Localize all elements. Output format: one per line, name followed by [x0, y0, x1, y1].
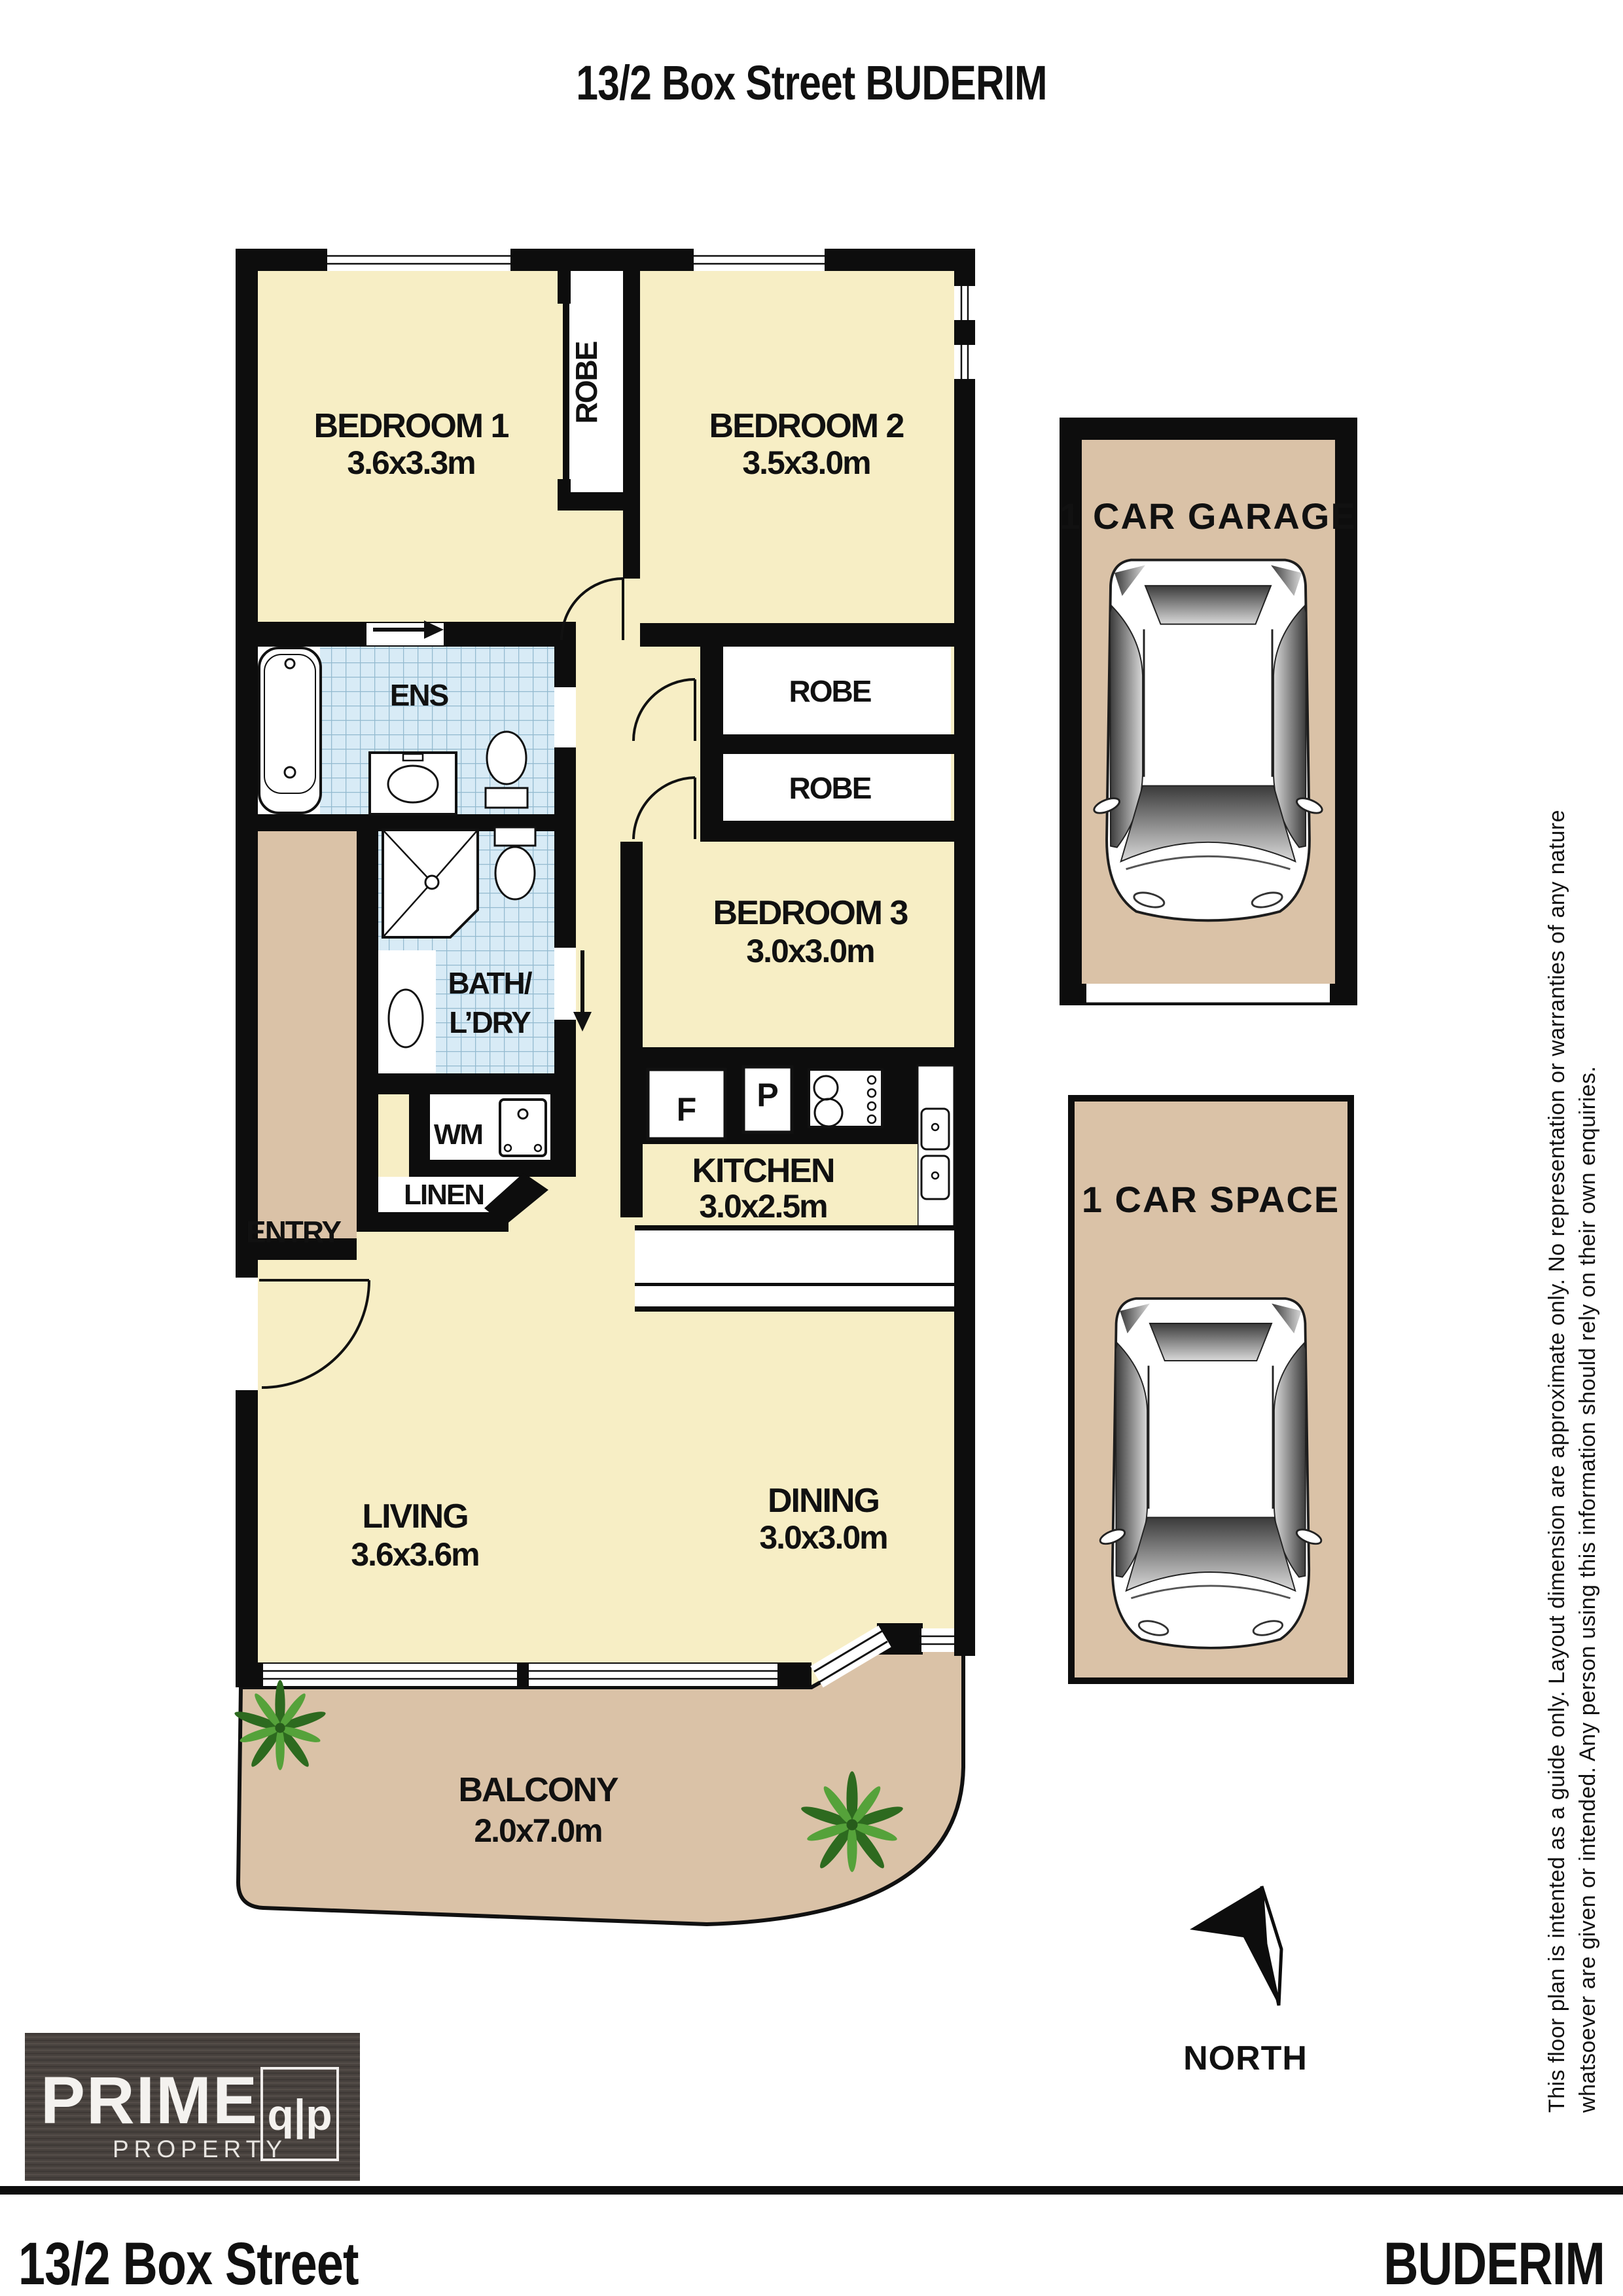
kitchen-label: KITCHEN: [692, 1152, 834, 1190]
disclaimer-line1: This floor plan is intented as a guide o…: [1544, 810, 1569, 2113]
dining-label: DINING: [768, 1482, 879, 1520]
bath-label-line1: BATH/: [448, 966, 532, 1000]
pantry-label: P: [757, 1077, 778, 1113]
kitchen-dims: 3.0x2.5m: [699, 1188, 827, 1225]
garage-car: [1092, 560, 1324, 921]
bedroom2-label: BEDROOM 2: [709, 407, 904, 445]
living-dims: 3.6x3.6m: [351, 1536, 478, 1573]
floor-plan: BEDROOM 1 3.6x3.3m BEDROOM 2 3.5x3.0m RO…: [233, 249, 975, 1924]
page-title: 13/2 Box Street BUDERIM: [576, 56, 1046, 110]
agency-logo: PRIME PROPERTY q|p: [25, 2033, 360, 2181]
ens-label: ENS: [390, 678, 448, 712]
living-label: LIVING: [362, 1498, 467, 1535]
footer-address: 13/2 Box Street: [18, 2230, 359, 2296]
robe-bottom-label: ROBE: [789, 771, 871, 805]
robe-strip-label: ROBE: [569, 342, 603, 423]
car-space-block: 1 CAR SPACE: [1071, 1098, 1351, 1681]
bath-label-line2: L’DRY: [449, 1005, 531, 1039]
kitchen-bench: [635, 1230, 954, 1306]
footer-suburb: BUDERIM: [1383, 2230, 1605, 2296]
bedroom2-dims: 3.5x3.0m: [742, 444, 870, 481]
garage-label: 1 CAR GARAGE: [1060, 495, 1356, 537]
linen-label: LINEN: [404, 1179, 484, 1211]
logo-monogram: q|p: [267, 2090, 332, 2140]
bedroom3-dims: 3.0x3.0m: [746, 933, 874, 969]
wm-label: WM: [434, 1119, 482, 1151]
entry-label: ENTRY: [246, 1215, 342, 1249]
bedroom1-dims: 3.6x3.3m: [347, 444, 474, 481]
car-space-label: 1 CAR SPACE: [1082, 1179, 1340, 1220]
bath-basin-icon: [389, 990, 423, 1047]
car-space-car: [1098, 1299, 1323, 1648]
dining-dims: 3.0x3.0m: [759, 1519, 887, 1556]
north-label: NORTH: [1183, 2039, 1308, 2077]
bedroom1-label: BEDROOM 1: [314, 407, 509, 445]
disclaimer-line2: whatsoever are given or intended. Any pe…: [1575, 1066, 1600, 2113]
floorplan-page: 13/2 Box Street BUDERIM: [0, 0, 1623, 2296]
logo-name: PRIME: [41, 2063, 259, 2138]
balcony-dims: 2.0x7.0m: [474, 1812, 601, 1849]
bedroom3-label: BEDROOM 3: [713, 894, 908, 932]
entry-area: [257, 831, 357, 1238]
footer-divider: [0, 2186, 1623, 2195]
garage-block: 1 CAR GARAGE: [1060, 418, 1357, 1005]
robe-top-label: ROBE: [789, 674, 871, 708]
balcony-label: BALCONY: [458, 1771, 618, 1809]
fridge-label: F: [677, 1091, 697, 1128]
bath-toilet-icon: [495, 827, 535, 846]
ens-toilet-icon: [487, 732, 526, 784]
